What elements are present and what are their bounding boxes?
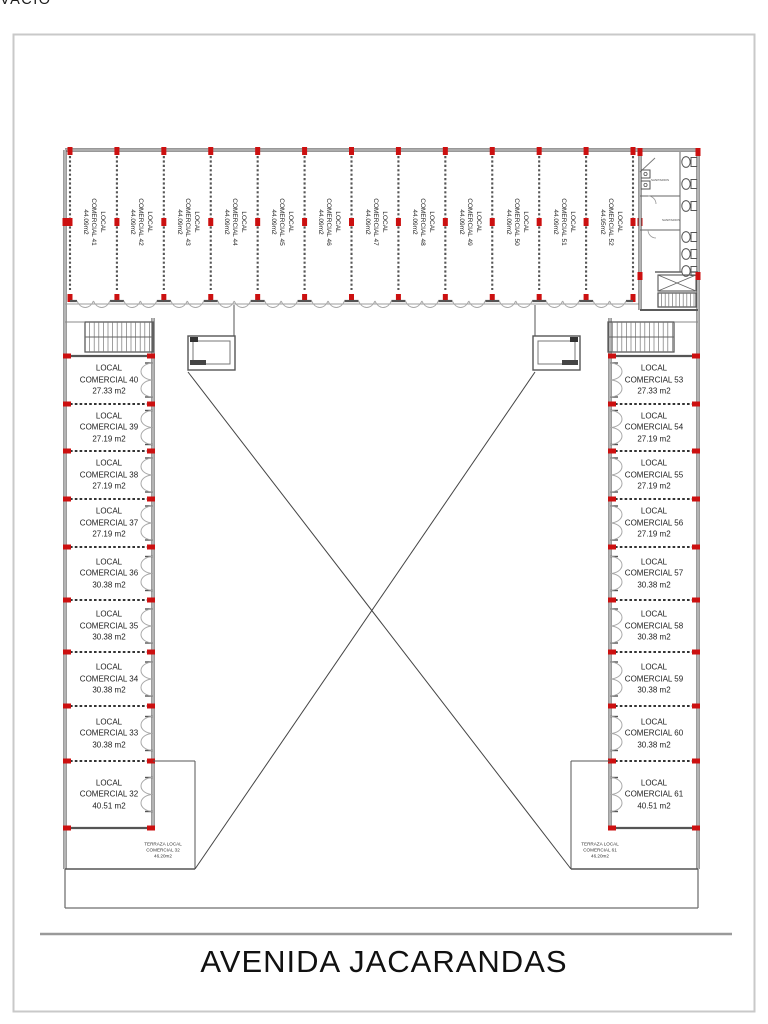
restroom-label-bottom: SANITARIOS <box>651 219 691 223</box>
right-unit-label-1: LOCALCOMERCIAL 5427.19 m2 <box>612 410 696 445</box>
top-unit-label-4-line: COMERCIAL 45 <box>277 180 286 264</box>
right-unit-label-2-line: 27.19 m2 <box>612 481 696 493</box>
left-unit-label-7-line: COMERCIAL 33 <box>67 728 151 740</box>
top-unit-label-5: LOCALCOMERCIAL 4644.09m2 <box>315 180 341 264</box>
right-unit-label-3-line: 27.19 m2 <box>612 529 696 541</box>
top-unit-label-7-line: 44.09m2 <box>409 180 418 264</box>
top-unit-label-4-line: LOCAL <box>285 180 294 264</box>
right-unit-label-4-line: LOCAL <box>612 556 696 568</box>
right-unit-label-4-line: COMERCIAL 57 <box>612 568 696 580</box>
top-unit-label-0: LOCALCOMERCIAL 4144.09m2 <box>81 180 107 264</box>
top-unit-label-4-line: 44.09m2 <box>268 180 277 264</box>
terrace-label-right-line: 46.20m2 <box>565 854 635 860</box>
top-unit-label-6-line: 44.09m2 <box>362 180 371 264</box>
right-unit-label-7-line: COMERCIAL 60 <box>612 728 696 740</box>
top-unit-label-7-line: LOCAL <box>426 180 435 264</box>
top-unit-label-11-line: COMERCIAL 52 <box>605 180 614 264</box>
right-unit-label-8-line: LOCAL <box>612 777 696 789</box>
left-unit-label-1-line: 27.19 m2 <box>67 433 151 445</box>
restroom-label-top: SANITARIOS <box>640 179 680 183</box>
top-unit-label-6-line: LOCAL <box>379 180 388 264</box>
top-unit-label-2-line: 44.09m2 <box>174 180 183 264</box>
right-unit-label-2-line: LOCAL <box>612 458 696 470</box>
left-unit-label-2-line: COMERCIAL 38 <box>67 469 151 481</box>
right-unit-label-1-line: 27.19 m2 <box>612 433 696 445</box>
left-unit-label-7-line: LOCAL <box>67 716 151 728</box>
top-unit-label-3-line: 44.09m2 <box>221 180 230 264</box>
void-area-label: VACIO <box>0 0 52 8</box>
left-unit-label-3-line: 27.19 m2 <box>67 529 151 541</box>
right-unit-label-7-line: 30.38 m2 <box>612 739 696 751</box>
left-unit-label-8: LOCALCOMERCIAL 3240.51 m2 <box>67 777 151 812</box>
right-unit-label-5-line: 30.38 m2 <box>612 632 696 644</box>
top-unit-label-3-line: LOCAL <box>238 180 247 264</box>
top-unit-label-7-line: COMERCIAL 48 <box>418 180 427 264</box>
terrace-label-right: TERRAZA LOCALCOMERCIAL 6146.20m2 <box>565 842 635 861</box>
left-unit-label-4-line: COMERCIAL 36 <box>67 568 151 580</box>
right-unit-label-7-line: LOCAL <box>612 716 696 728</box>
right-unit-label-1-line: LOCAL <box>612 410 696 422</box>
left-unit-label-1: LOCALCOMERCIAL 3927.19 m2 <box>67 410 151 445</box>
left-unit-label-5: LOCALCOMERCIAL 3530.38 m2 <box>67 609 151 644</box>
left-unit-label-3-line: LOCAL <box>67 506 151 518</box>
left-unit-label-6: LOCALCOMERCIAL 3430.38 m2 <box>67 662 151 697</box>
top-unit-label-4: LOCALCOMERCIAL 4544.09m2 <box>268 180 294 264</box>
top-unit-label-10-line: COMERCIAL 51 <box>558 180 567 264</box>
left-unit-label-6-line: 30.38 m2 <box>67 685 151 697</box>
left-unit-label-5-line: LOCAL <box>67 609 151 621</box>
top-unit-label-5-line: COMERCIAL 46 <box>324 180 333 264</box>
left-unit-label-0-line: LOCAL <box>67 363 151 375</box>
left-unit-label-8-line: 40.51 m2 <box>67 800 151 812</box>
floor-plan-page: VACIO AVENIDA JACARANDAS LOCALCOMERCIAL … <box>0 0 768 1024</box>
right-unit-label-3: LOCALCOMERCIAL 5627.19 m2 <box>612 506 696 541</box>
top-unit-label-10-line: LOCAL <box>567 180 576 264</box>
top-unit-label-11: LOCALCOMERCIAL 5244.95m2 <box>597 180 623 264</box>
left-unit-label-6-line: LOCAL <box>67 662 151 674</box>
right-unit-label-6-line: LOCAL <box>612 662 696 674</box>
top-unit-label-9-line: 44.09m2 <box>503 180 512 264</box>
top-unit-label-10-line: 44.09m2 <box>550 180 559 264</box>
top-unit-label-9-line: COMERCIAL 50 <box>511 180 520 264</box>
left-unit-label-4: LOCALCOMERCIAL 3630.38 m2 <box>67 556 151 591</box>
right-unit-label-2: LOCALCOMERCIAL 5527.19 m2 <box>612 458 696 493</box>
top-unit-label-0-line: 44.09m2 <box>81 180 90 264</box>
left-unit-label-2-line: LOCAL <box>67 458 151 470</box>
left-unit-label-3-line: COMERCIAL 37 <box>67 517 151 529</box>
left-unit-label-0: LOCALCOMERCIAL 4027.33 m2 <box>67 363 151 398</box>
right-unit-label-4-line: 30.38 m2 <box>612 579 696 591</box>
top-unit-label-9-line: LOCAL <box>520 180 529 264</box>
right-unit-label-6-line: 30.38 m2 <box>612 685 696 697</box>
top-unit-label-6: LOCALCOMERCIAL 4744.09m2 <box>362 180 388 264</box>
top-unit-label-8: LOCALCOMERCIAL 4944.09m2 <box>456 180 482 264</box>
right-unit-label-0-line: LOCAL <box>612 363 696 375</box>
left-unit-label-7-line: 30.38 m2 <box>67 739 151 751</box>
left-unit-label-4-line: 30.38 m2 <box>67 579 151 591</box>
top-unit-label-1-line: LOCAL <box>145 180 154 264</box>
left-unit-label-1-line: COMERCIAL 39 <box>67 422 151 434</box>
top-unit-label-5-line: LOCAL <box>332 180 341 264</box>
top-unit-label-3-line: COMERCIAL 44 <box>230 180 239 264</box>
right-unit-label-0-line: COMERCIAL 53 <box>612 374 696 386</box>
restroom-label-bottom-line: SANITARIOS <box>651 219 691 223</box>
street-name-label: AVENIDA JACARANDAS <box>34 944 734 980</box>
top-unit-label-6-line: COMERCIAL 47 <box>371 180 380 264</box>
left-unit-label-2-line: 27.19 m2 <box>67 481 151 493</box>
right-unit-label-1-line: COMERCIAL 54 <box>612 422 696 434</box>
left-unit-label-2: LOCALCOMERCIAL 3827.19 m2 <box>67 458 151 493</box>
top-unit-label-2: LOCALCOMERCIAL 4344.09m2 <box>174 180 200 264</box>
top-unit-label-11-line: LOCAL <box>614 180 623 264</box>
top-unit-label-1-line: COMERCIAL 42 <box>136 180 145 264</box>
right-unit-label-0: LOCALCOMERCIAL 5327.33 m2 <box>612 363 696 398</box>
left-unit-label-8-line: LOCAL <box>67 777 151 789</box>
left-unit-label-0-line: 27.33 m2 <box>67 386 151 398</box>
right-unit-label-3-line: LOCAL <box>612 506 696 518</box>
top-unit-label-11-line: 44.95m2 <box>597 180 606 264</box>
right-unit-label-6-line: COMERCIAL 59 <box>612 673 696 685</box>
top-unit-label-10: LOCALCOMERCIAL 5144.09m2 <box>550 180 576 264</box>
left-unit-label-1-line: LOCAL <box>67 410 151 422</box>
right-unit-label-8-line: COMERCIAL 61 <box>612 789 696 801</box>
right-unit-label-6: LOCALCOMERCIAL 5930.38 m2 <box>612 662 696 697</box>
top-unit-label-7: LOCALCOMERCIAL 4844.09m2 <box>409 180 435 264</box>
left-unit-label-8-line: COMERCIAL 32 <box>67 789 151 801</box>
right-unit-label-3-line: COMERCIAL 56 <box>612 517 696 529</box>
left-unit-label-5-line: 30.38 m2 <box>67 632 151 644</box>
terrace-label-left: TERRAZA LOCALCOMERCIAL 3246.20m2 <box>128 842 198 861</box>
left-unit-label-7: LOCALCOMERCIAL 3330.38 m2 <box>67 716 151 751</box>
top-unit-label-3: LOCALCOMERCIAL 4444.09m2 <box>221 180 247 264</box>
top-unit-label-0-line: COMERCIAL 41 <box>89 180 98 264</box>
top-unit-label-2-line: LOCAL <box>192 180 201 264</box>
top-unit-label-1: LOCALCOMERCIAL 4244.09m2 <box>128 180 154 264</box>
top-unit-label-9: LOCALCOMERCIAL 5044.09m2 <box>503 180 529 264</box>
right-unit-label-5: LOCALCOMERCIAL 5830.38 m2 <box>612 609 696 644</box>
left-unit-label-3: LOCALCOMERCIAL 3727.19 m2 <box>67 506 151 541</box>
top-unit-label-8-line: 44.09m2 <box>456 180 465 264</box>
restroom-label-top-line: SANITARIOS <box>640 179 680 183</box>
right-unit-label-2-line: COMERCIAL 55 <box>612 469 696 481</box>
right-unit-label-0-line: 27.33 m2 <box>612 386 696 398</box>
top-unit-label-5-line: 44.09m2 <box>315 180 324 264</box>
right-unit-label-4: LOCALCOMERCIAL 5730.38 m2 <box>612 556 696 591</box>
right-unit-label-8-line: 40.51 m2 <box>612 800 696 812</box>
right-unit-label-5-line: COMERCIAL 58 <box>612 620 696 632</box>
top-unit-label-8-line: COMERCIAL 49 <box>464 180 473 264</box>
top-unit-label-2-line: COMERCIAL 43 <box>183 180 192 264</box>
right-unit-label-5-line: LOCAL <box>612 609 696 621</box>
left-unit-label-5-line: COMERCIAL 35 <box>67 620 151 632</box>
right-unit-label-7: LOCALCOMERCIAL 6030.38 m2 <box>612 716 696 751</box>
right-unit-label-8: LOCALCOMERCIAL 6140.51 m2 <box>612 777 696 812</box>
left-unit-label-0-line: COMERCIAL 40 <box>67 374 151 386</box>
left-unit-label-4-line: LOCAL <box>67 556 151 568</box>
top-unit-label-0-line: LOCAL <box>98 180 107 264</box>
top-unit-label-8-line: LOCAL <box>473 180 482 264</box>
left-unit-label-6-line: COMERCIAL 34 <box>67 673 151 685</box>
terrace-label-left-line: 46.20m2 <box>128 854 198 860</box>
top-unit-label-1-line: 44.09m2 <box>128 180 137 264</box>
